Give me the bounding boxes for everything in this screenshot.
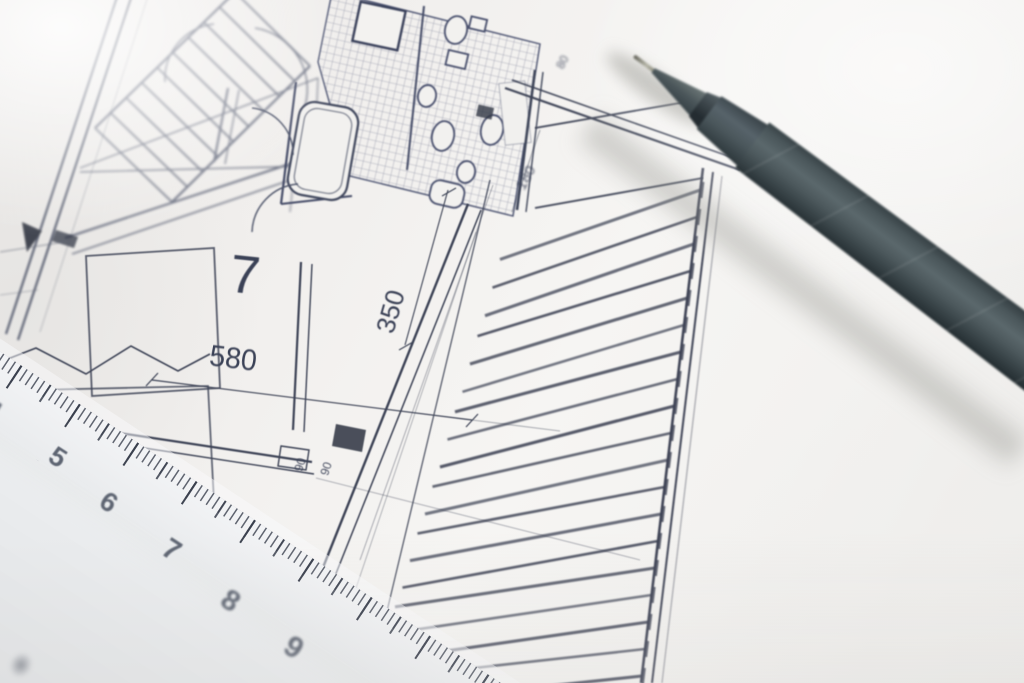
photo-stage: 7 580 350 180 80 90 90 4 5 6 7 8 9 [0, 0, 1024, 683]
